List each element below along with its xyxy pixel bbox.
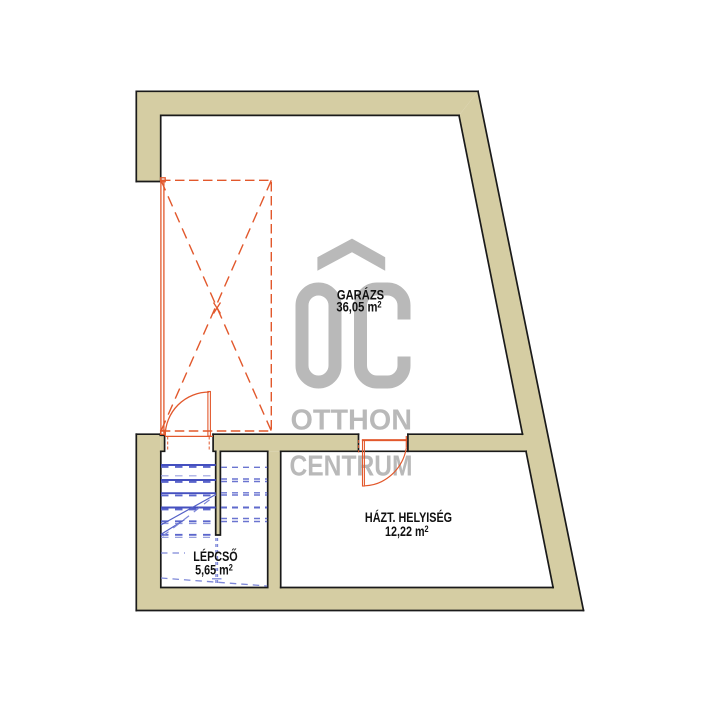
svg-text:HÁZT. HELYISÉG: HÁZT. HELYISÉG <box>365 509 452 526</box>
svg-text:36,05 m2: 36,05 m2 <box>336 298 381 314</box>
svg-text:CENTRUM: CENTRUM <box>290 451 413 483</box>
svg-text:12,22 m2: 12,22 m2 <box>385 523 429 539</box>
svg-text:5,65 m2: 5,65 m2 <box>195 561 233 577</box>
svg-text:OTTHON: OTTHON <box>291 405 413 437</box>
